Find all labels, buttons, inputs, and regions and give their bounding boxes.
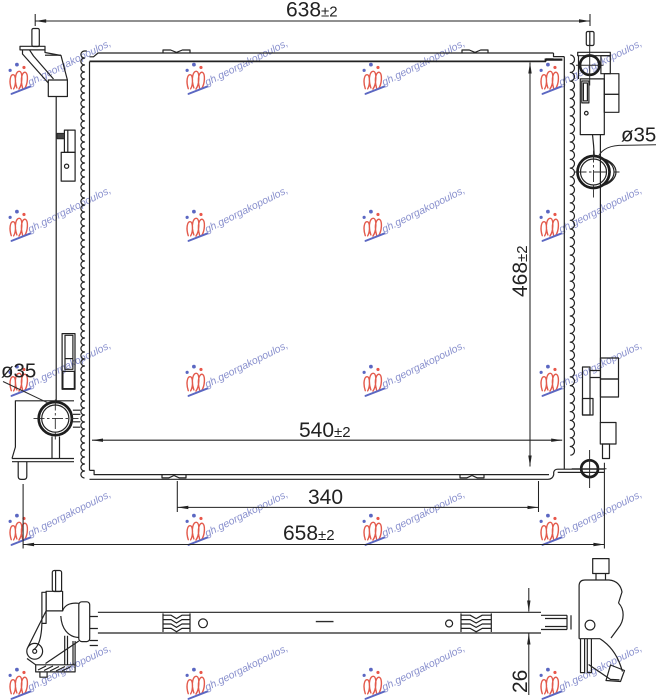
svg-text:638±2: 638±2 (286, 0, 338, 22)
svg-text:658±2: 658±2 (283, 522, 335, 545)
svg-text:gh.georgakopoulos,: gh.georgakopoulos, (557, 643, 644, 694)
svg-text:gh.georgakopoulos,: gh.georgakopoulos, (380, 489, 467, 540)
svg-text:468±2: 468±2 (509, 245, 532, 297)
svg-text:gh.georgakopoulos,: gh.georgakopoulos, (203, 340, 290, 391)
svg-text:gh.georgakopoulos,: gh.georgakopoulos, (380, 38, 467, 89)
svg-text:gh.georgakopoulos,: gh.georgakopoulos, (380, 185, 467, 236)
svg-text:gh.georgakopoulos,: gh.georgakopoulos, (203, 38, 290, 89)
svg-text:ø35: ø35 (621, 124, 656, 147)
svg-text:gh.georgakopoulos,: gh.georgakopoulos, (203, 489, 290, 540)
svg-text:gh.georgakopoulos,: gh.georgakopoulos, (26, 489, 113, 540)
svg-text:26: 26 (509, 670, 532, 693)
svg-text:gh.georgakopoulos,: gh.georgakopoulos, (380, 643, 467, 694)
svg-text:gh.georgakopoulos,: gh.georgakopoulos, (26, 643, 113, 694)
svg-text:gh.georgakopoulos,: gh.georgakopoulos, (203, 185, 290, 236)
svg-text:340: 340 (308, 486, 343, 509)
svg-text:gh.georgakopoulos,: gh.georgakopoulos, (26, 185, 113, 236)
svg-text:gh.georgakopoulos,: gh.georgakopoulos, (26, 340, 113, 391)
svg-text:ø35: ø35 (1, 360, 36, 383)
svg-text:540±2: 540±2 (299, 419, 351, 442)
svg-text:gh.georgakopoulos,: gh.georgakopoulos, (380, 340, 467, 391)
svg-text:gh.georgakopoulos,: gh.georgakopoulos, (557, 489, 644, 540)
svg-text:gh.georgakopoulos,: gh.georgakopoulos, (203, 643, 290, 694)
